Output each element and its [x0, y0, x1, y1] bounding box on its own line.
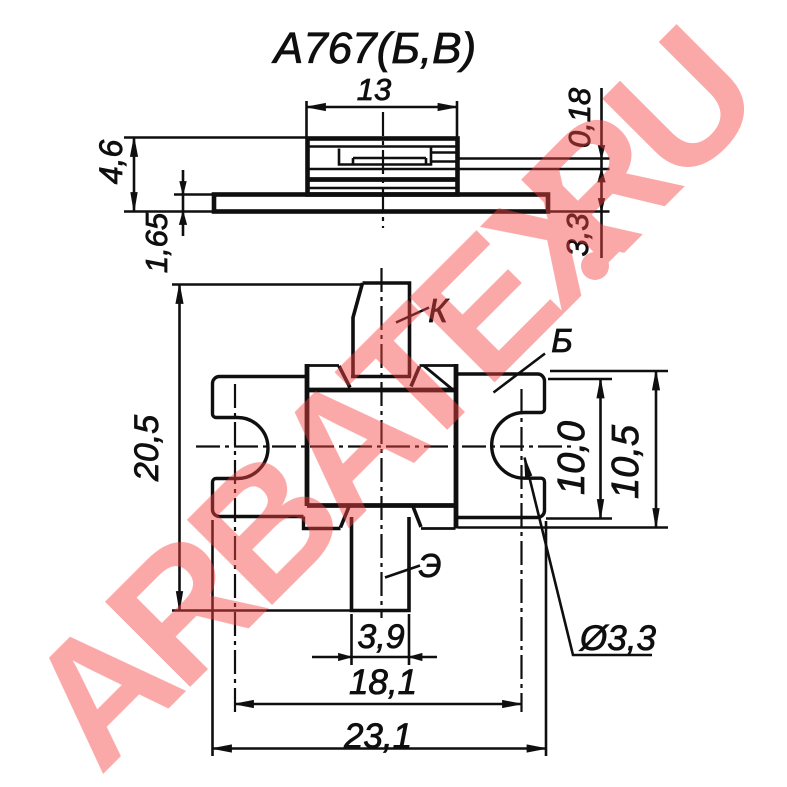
- svg-text:10,5: 10,5: [605, 424, 647, 499]
- svg-text:10,0: 10,0: [551, 421, 593, 495]
- svg-text:1,65: 1,65: [139, 212, 174, 273]
- svg-text:3,9: 3,9: [357, 618, 404, 656]
- svg-text:Э: Э: [419, 547, 442, 584]
- svg-text:23,1: 23,1: [343, 717, 412, 756]
- svg-text:Ø3,3: Ø3,3: [579, 619, 656, 658]
- svg-text:18,1: 18,1: [349, 663, 417, 702]
- svg-text:А767(Б,В): А767(Б,В): [271, 24, 476, 73]
- svg-text:4,6: 4,6: [93, 140, 129, 185]
- svg-text:20,5: 20,5: [128, 415, 166, 482]
- svg-text:13: 13: [357, 72, 391, 107]
